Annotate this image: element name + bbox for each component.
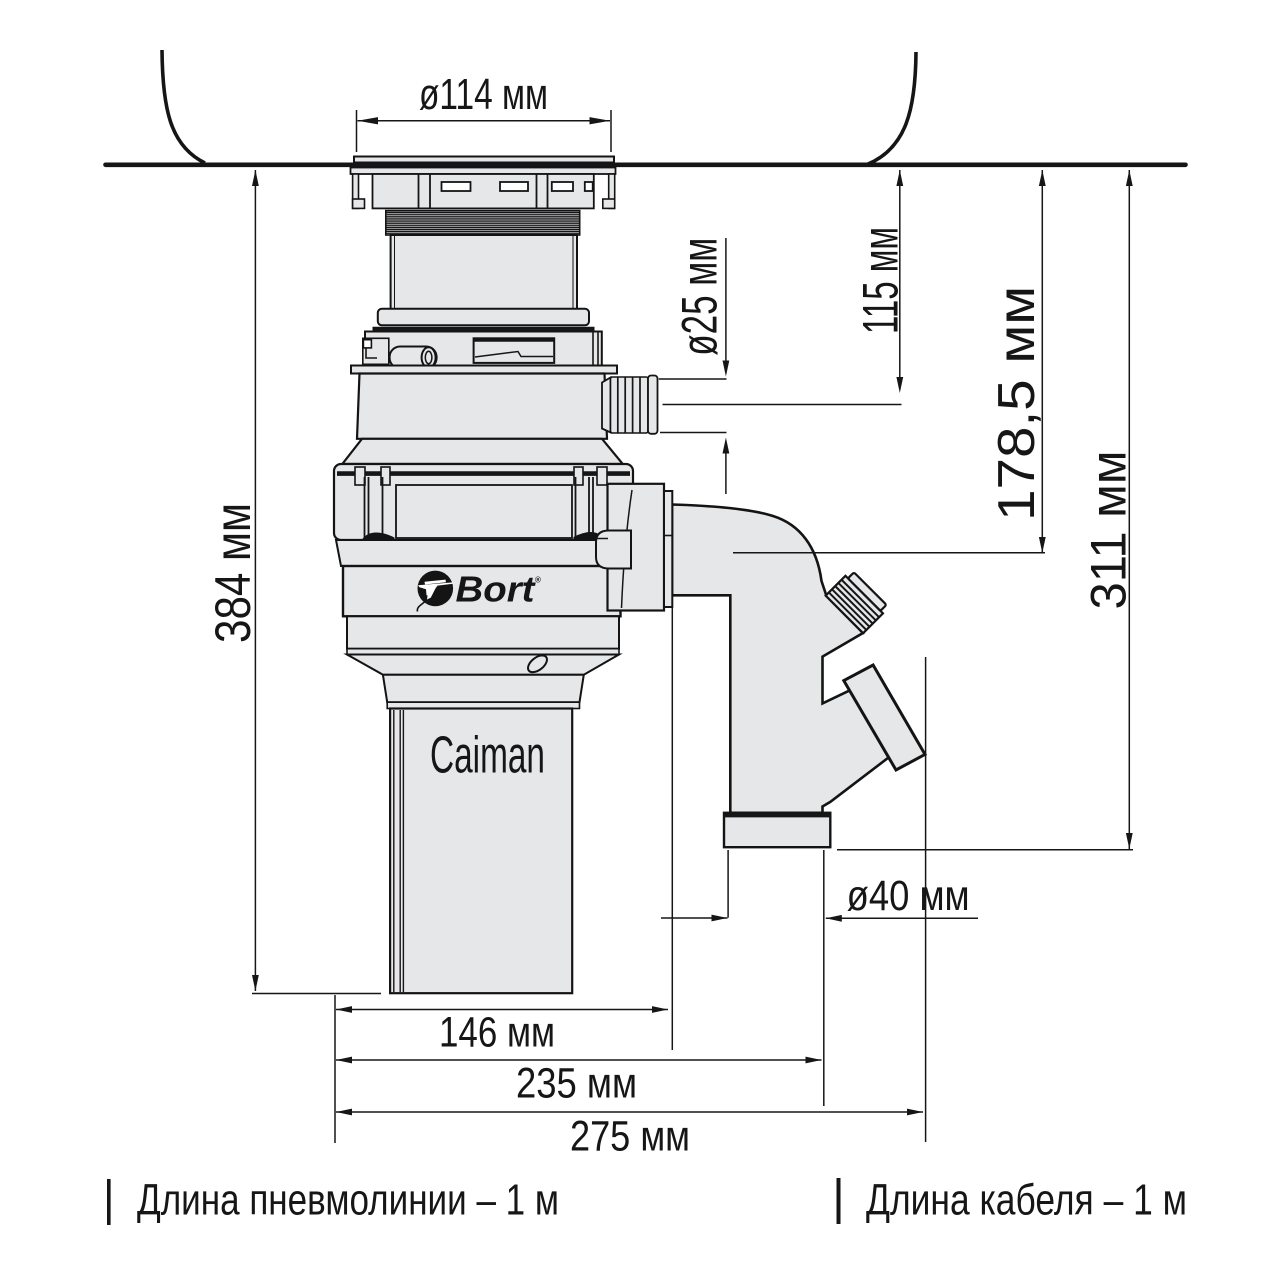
- svg-text:311 мм: 311 мм: [1081, 451, 1137, 610]
- svg-text:ø40 мм: ø40 мм: [847, 872, 970, 920]
- svg-text:ø25 мм: ø25 мм: [672, 238, 728, 356]
- svg-text:178,5 мм: 178,5 мм: [988, 286, 1046, 521]
- svg-text:115 мм: 115 мм: [853, 227, 909, 334]
- svg-text:146 мм: 146 мм: [439, 1009, 555, 1057]
- svg-text:Длина пневмолинии – 1 м: Длина пневмолинии – 1 м: [137, 1176, 559, 1225]
- svg-text:Длина кабеля – 1 м: Длина кабеля – 1 м: [866, 1176, 1187, 1225]
- svg-text:384 мм: 384 мм: [205, 503, 261, 643]
- svg-text:Caiman: Caiman: [430, 727, 545, 785]
- svg-text:Bort: Bort: [456, 568, 537, 609]
- svg-text:275 мм: 275 мм: [570, 1113, 690, 1161]
- svg-text:®: ®: [535, 576, 541, 585]
- svg-text:235 мм: 235 мм: [516, 1060, 637, 1108]
- svg-text:ø114 мм: ø114 мм: [419, 70, 548, 119]
